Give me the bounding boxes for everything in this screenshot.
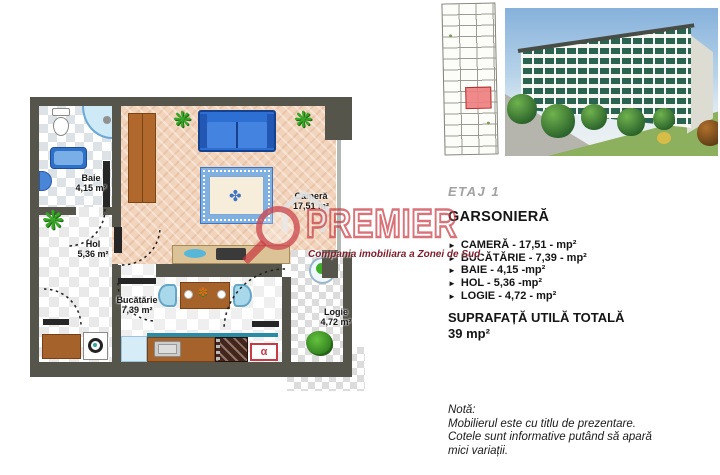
total-area: SUPRAFAȚĂ UTILĂ TOTALĂ 39 mp² [448, 310, 624, 341]
tree-icon [697, 120, 718, 146]
room-list: ►CAMERĂ - 17,51 - mp² ►BUCĂTĂRIE - 7,39 … [448, 239, 587, 302]
door-arc [44, 289, 81, 326]
list-item: ►BAIE - 4,15 -mp² [448, 264, 587, 277]
room-label-baie: Baie4,15 m² [60, 173, 122, 193]
list-item: ►LOGIE - 4,72 - mp² [448, 289, 587, 302]
tree-icon [653, 108, 675, 130]
total-area-value: 39 mp² [448, 326, 624, 342]
schematic-tree-dot [487, 122, 490, 125]
listing-image: ❋ ❋ ❋ ✤ α ✽ [0, 0, 720, 475]
building-floor-schematic [441, 2, 498, 155]
list-item: ►CAMERĂ - 17,51 - mp² [448, 239, 587, 252]
bullet-icon: ► [448, 292, 456, 301]
note-line: mici variații. [448, 445, 652, 459]
door-arcs [30, 97, 352, 377]
floor-plan: ❋ ❋ ❋ ✤ α ✽ [30, 97, 352, 377]
bullet-icon: ► [448, 266, 456, 275]
note-line: Cotele sunt informative putând să apară [448, 431, 652, 445]
bullet-icon: ► [448, 254, 456, 263]
floor-label: ETAJ 1 [448, 184, 500, 199]
building-render [505, 8, 718, 156]
tree-icon [581, 104, 607, 130]
highlighted-unit [465, 87, 491, 110]
tree-icon [617, 108, 645, 136]
room-label-camera: Cameră17,51 m² [278, 191, 344, 211]
list-item: ►BUCĂTĂRIE - 7,39 - mp² [448, 252, 587, 265]
bullet-icon: ► [448, 241, 456, 250]
door-arc [122, 227, 160, 265]
room-label-bucatarie: Bucătărie7,39 m² [102, 295, 172, 315]
tree-icon [541, 104, 575, 138]
bullet-icon: ► [448, 279, 456, 288]
note-title: Notă: [448, 404, 652, 418]
note-line: Mobilierul este cu titlu de prezentare. [448, 418, 652, 432]
note: Notă: Mobilierul este cu titlu de prezen… [448, 404, 652, 458]
schematic-tree-dot [449, 34, 452, 37]
shrub-icon [657, 132, 671, 144]
apartment-type-title: GARSONIERĂ [448, 209, 549, 225]
total-area-label: SUPRAFAȚĂ UTILĂ TOTALĂ [448, 310, 624, 326]
room-label-hol: Hol5,36 m² [62, 239, 124, 259]
room-label-logie: Logie4,72 m² [304, 307, 368, 327]
door-arc [224, 269, 285, 330]
tree-icon [507, 94, 537, 124]
list-item: ►HOL - 5,36 -mp² [448, 277, 587, 290]
